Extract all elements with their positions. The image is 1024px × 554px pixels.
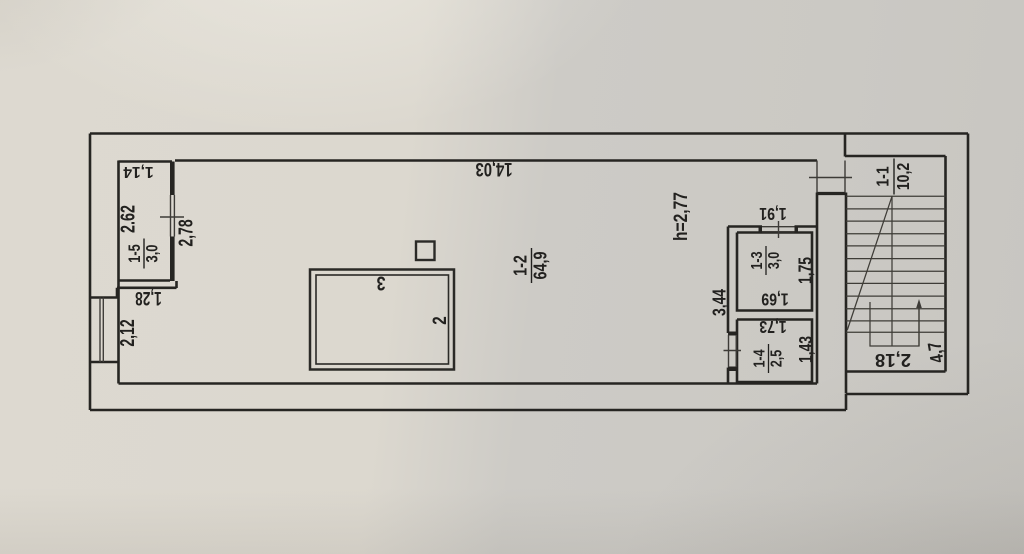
svg-text:3,0: 3,0	[144, 245, 162, 263]
svg-text:2,12: 2,12	[115, 319, 138, 346]
svg-text:10,2: 10,2	[893, 163, 913, 190]
svg-text:2.62: 2.62	[116, 205, 139, 233]
svg-text:1-2: 1-2	[510, 255, 531, 276]
svg-text:4,7: 4,7	[924, 340, 948, 364]
svg-text:2,78: 2,78	[174, 219, 197, 247]
svg-text:h=2,77: h=2,77	[670, 192, 692, 241]
svg-text:1,69: 1,69	[761, 289, 788, 308]
svg-text:1,75: 1,75	[796, 257, 816, 284]
svg-text:1,73: 1,73	[759, 317, 786, 336]
svg-text:1,43: 1,43	[796, 336, 816, 363]
svg-text:1-1: 1-1	[873, 166, 893, 186]
svg-text:1-3: 1-3	[749, 251, 767, 269]
svg-text:1,28: 1,28	[135, 287, 162, 309]
svg-text:3: 3	[377, 272, 386, 294]
svg-text:2: 2	[428, 316, 450, 324]
svg-text:1,91: 1,91	[759, 204, 786, 223]
svg-text:14,03: 14,03	[475, 159, 512, 180]
svg-text:1-5: 1-5	[127, 244, 145, 263]
svg-text:3,0: 3,0	[766, 252, 784, 269]
svg-text:2,5: 2,5	[768, 350, 786, 367]
svg-text:1,14: 1,14	[123, 163, 154, 180]
svg-text:64,9: 64,9	[530, 251, 551, 279]
svg-text:1-4: 1-4	[751, 349, 769, 367]
svg-text:3,44: 3,44	[710, 289, 730, 316]
svg-text:2,18: 2,18	[875, 350, 911, 371]
